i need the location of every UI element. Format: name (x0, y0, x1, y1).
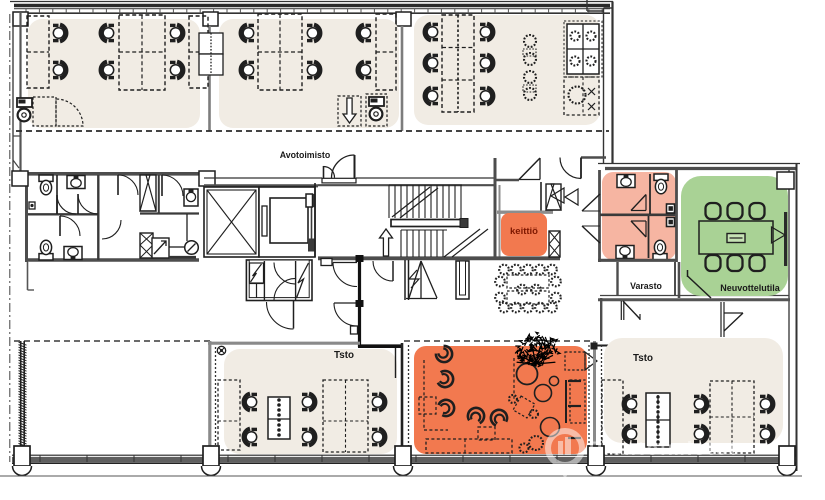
svg-text:Tsto: Tsto (633, 353, 653, 364)
svg-text:Neuvottelutila: Neuvottelutila (720, 283, 781, 293)
svg-text:keittiö: keittiö (510, 226, 538, 237)
svg-text:Tsto: Tsto (334, 350, 354, 361)
svg-text:Pientoimistot: Pientoimistot (589, 439, 738, 460)
svg-text:Avotoimisto: Avotoimisto (280, 150, 331, 160)
svg-text:Varasto: Varasto (630, 281, 662, 291)
